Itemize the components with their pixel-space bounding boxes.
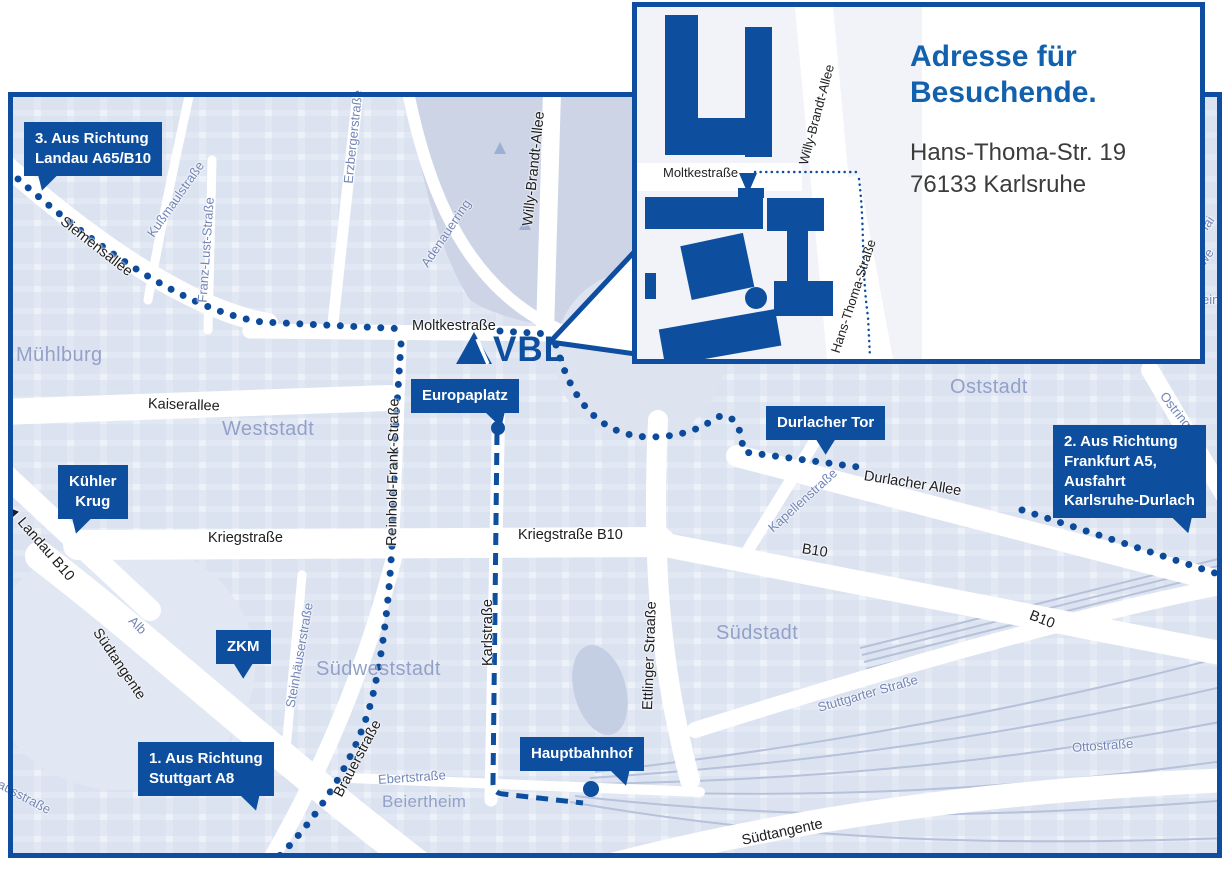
inset-title: Adresse für Besuchende. (910, 39, 1126, 111)
callout-frankfurt: 2. Aus RichtungFrankfurt A5,AusfahrtKarl… (1053, 425, 1206, 518)
vbl-triangle-icon (455, 331, 493, 365)
inset-address: Hans-Thoma-Str. 19 76133 Karlsruhe (910, 137, 1126, 201)
callout-hauptbahnhof: Hauptbahnhof (520, 737, 644, 771)
hauptbahnhof-dot (583, 781, 599, 797)
inset-panel: MoltkestraßeWilly-Brandt-AlleeHans-Thoma… (632, 2, 1205, 364)
callout-tail-icon (38, 175, 58, 191)
inset-address-line1: Hans-Thoma-Str. 19 (910, 137, 1126, 169)
callout-tail-icon (610, 770, 630, 786)
callout-tail-icon (233, 663, 253, 679)
callout-stuttgart: 1. Aus RichtungStuttgart A8 (138, 742, 274, 796)
inset-title-line1: Adresse für (910, 39, 1126, 75)
europaplatz-dot (491, 421, 505, 435)
callout-durlacher-tor: Durlacher Tor (766, 406, 885, 440)
callout-tail-icon (72, 518, 92, 534)
callout-kuehler-krug: KühlerKrug (58, 465, 128, 519)
inset-address-line2: 76133 Karlsruhe (910, 169, 1126, 201)
inset-title-line2: Besuchende. (910, 75, 1126, 111)
callout-tail-icon (1172, 517, 1192, 533)
inset-map: MoltkestraßeWilly-Brandt-AlleeHans-Thoma… (637, 7, 922, 359)
callout-europaplatz: Europaplatz (411, 379, 519, 413)
callout-landau: 3. Aus RichtungLandau A65/B10 (24, 122, 162, 176)
callout-tail-icon (816, 439, 836, 455)
map-canvas: SiemensalleeMoltkestraßeKaiseralleeKrieg… (0, 0, 1230, 874)
callout-zkm: ZKM (216, 630, 271, 664)
callout-tail-icon (240, 795, 260, 811)
vbl-logo: VBL (455, 331, 566, 365)
inset-street-label: Moltkestraße (663, 165, 738, 180)
vbl-logo-text: VBL (493, 336, 566, 365)
inset-text: Adresse für Besuchende. Hans-Thoma-Str. … (910, 39, 1126, 201)
inset-buildings (637, 7, 922, 359)
